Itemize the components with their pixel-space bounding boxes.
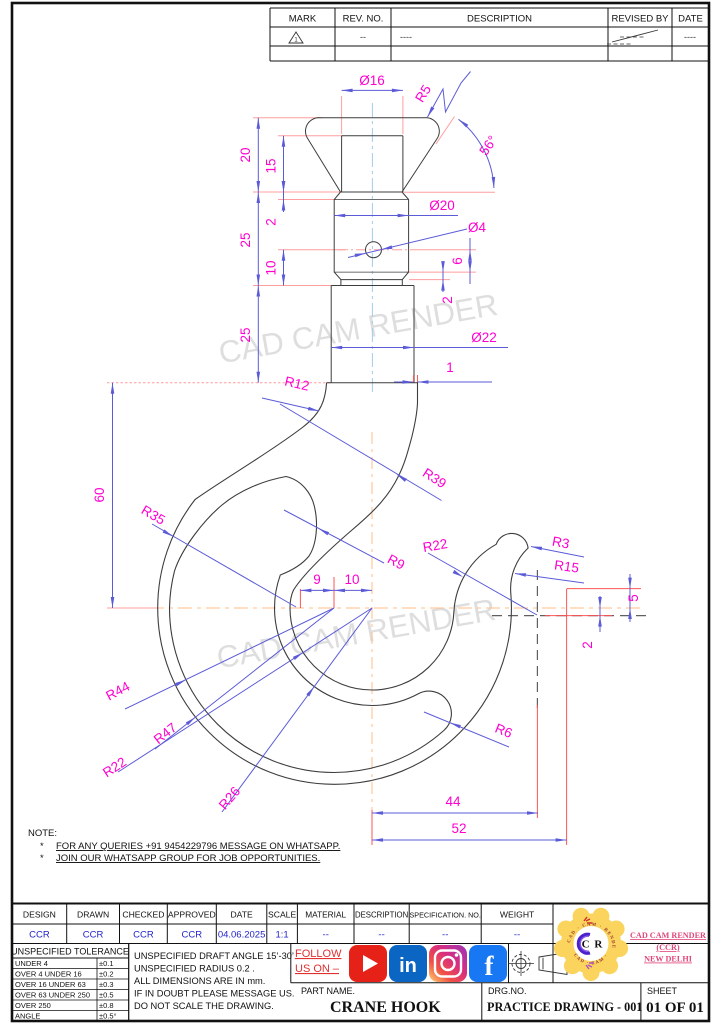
- svg-text:44: 44: [445, 794, 461, 809]
- svg-text:60: 60: [92, 487, 107, 502]
- svg-text:*: *: [40, 841, 44, 852]
- svg-text:15: 15: [264, 158, 279, 173]
- svg-text:2: 2: [580, 641, 595, 649]
- svg-text:R15: R15: [553, 557, 580, 575]
- svg-text:OVER 4 UNDER 16: OVER 4 UNDER 16: [15, 970, 82, 979]
- svg-text:±0.5°: ±0.5°: [99, 1012, 117, 1021]
- svg-text:CRANE HOOK: CRANE HOOK: [330, 999, 441, 1016]
- svg-text:DESCRIPTION: DESCRIPTION: [467, 14, 532, 25]
- svg-text:6: 6: [450, 257, 465, 265]
- svg-text:56°: 56°: [476, 133, 500, 158]
- svg-text:CAD CAM RENDER: CAD CAM RENDER: [630, 931, 706, 940]
- svg-text:Ø20: Ø20: [429, 198, 455, 213]
- svg-text:NOTE:: NOTE:: [28, 828, 57, 839]
- svg-text:--: --: [378, 930, 384, 941]
- svg-text:ALL DIMENSIONS ARE IN mm.: ALL DIMENSIONS ARE IN mm.: [134, 976, 265, 986]
- svg-text:--: --: [323, 930, 329, 941]
- svg-text:1:1: 1:1: [275, 930, 288, 941]
- svg-text:R47: R47: [151, 720, 180, 747]
- svg-text:±0.8: ±0.8: [99, 1001, 114, 1010]
- svg-text:20: 20: [238, 147, 253, 162]
- svg-text:CCR: CCR: [182, 930, 203, 941]
- svg-text:OVER 63 UNDER 250: OVER 63 UNDER 250: [15, 991, 90, 1000]
- svg-text:ANGLE: ANGLE: [15, 1012, 40, 1021]
- svg-text:*: *: [40, 853, 44, 864]
- svg-text:CHECKED: CHECKED: [122, 910, 164, 920]
- svg-text:CAD CAM RENDER: CAD CAM RENDER: [214, 592, 498, 676]
- svg-text:--: --: [442, 930, 448, 941]
- svg-text:±0.5: ±0.5: [99, 991, 114, 1000]
- svg-text:±0.2: ±0.2: [99, 970, 114, 979]
- svg-text:R5: R5: [412, 82, 434, 105]
- svg-text:±0.1: ±0.1: [99, 959, 114, 968]
- svg-text:1: 1: [446, 360, 454, 375]
- svg-text:SCALE: SCALE: [268, 910, 296, 920]
- svg-text:UNSPECIFIED RADIUS 0.2 .: UNSPECIFIED RADIUS 0.2 .: [134, 964, 255, 974]
- svg-text:R12: R12: [283, 374, 311, 394]
- svg-text:OVER 250: OVER 250: [15, 1001, 51, 1010]
- svg-text:52: 52: [451, 821, 466, 836]
- svg-text:9: 9: [313, 572, 321, 587]
- svg-text:04.06.2025: 04.06.2025: [218, 930, 266, 941]
- svg-text:R22: R22: [422, 536, 449, 555]
- svg-text:R39: R39: [420, 465, 449, 491]
- svg-text:(CCR): (CCR): [656, 943, 679, 952]
- svg-text:PRACTICE DRAWING - 001: PRACTICE DRAWING - 001: [487, 1000, 642, 1014]
- svg-text:25: 25: [238, 327, 253, 342]
- svg-text:DO NOT SCALE THE DRAWING.: DO NOT SCALE THE DRAWING.: [134, 1001, 274, 1011]
- svg-text:IF IN DOUBT PLEASE MESSAGE US.: IF IN DOUBT PLEASE MESSAGE US.: [134, 989, 295, 999]
- svg-text:R35: R35: [139, 502, 168, 527]
- svg-text:CCR: CCR: [133, 930, 154, 941]
- svg-text:REVISED BY: REVISED BY: [611, 14, 669, 25]
- svg-text:01 OF 01: 01 OF 01: [646, 1000, 704, 1016]
- svg-text:SPECIFICATION. NO.: SPECIFICATION. NO.: [410, 911, 481, 920]
- svg-text:MARK: MARK: [289, 14, 317, 25]
- svg-text:±0.3: ±0.3: [99, 980, 114, 989]
- svg-text:--: --: [514, 930, 520, 941]
- svg-text:2: 2: [264, 218, 279, 226]
- svg-text:REV. NO.: REV. NO.: [343, 14, 384, 25]
- svg-text:C R: C R: [582, 939, 604, 951]
- svg-text:DATE: DATE: [678, 14, 703, 25]
- svg-text:CCR: CCR: [29, 930, 50, 941]
- svg-text:UNDER 4: UNDER 4: [15, 959, 48, 968]
- svg-text:APPROVED: APPROVED: [168, 910, 216, 920]
- svg-text:5: 5: [626, 594, 641, 602]
- svg-text:--: --: [360, 32, 366, 42]
- svg-text:PART NAME.: PART NAME.: [301, 986, 355, 996]
- svg-text:JOIN OUR WHATSAPP GROUP FOR JO: JOIN OUR WHATSAPP GROUP FOR JOB OPPORTUN…: [56, 853, 320, 864]
- svg-text:OVER 16 UNDER 63: OVER 16 UNDER 63: [15, 980, 86, 989]
- svg-text:FOLLOW: FOLLOW: [295, 948, 342, 960]
- svg-text:R9: R9: [385, 551, 407, 572]
- svg-text:Ø22: Ø22: [471, 330, 497, 345]
- svg-text:25: 25: [238, 232, 253, 247]
- svg-text:----: ----: [684, 32, 696, 42]
- svg-text:DESCRIPTION: DESCRIPTION: [355, 911, 408, 920]
- svg-text:WEIGHT: WEIGHT: [500, 910, 535, 920]
- svg-text:DESIGN: DESIGN: [23, 910, 56, 920]
- svg-text:R6: R6: [493, 721, 515, 741]
- svg-text:Ø16: Ø16: [359, 73, 385, 88]
- svg-text:R22: R22: [100, 754, 129, 780]
- svg-text:CCR: CCR: [83, 930, 104, 941]
- svg-text:UNSPECIFIED TOLERANCE: UNSPECIFIED TOLERANCE: [11, 947, 129, 957]
- svg-text:UNSPECIFIED DRAFT ANGLE 15’-30: UNSPECIFIED DRAFT ANGLE 15’-30’.: [134, 951, 297, 961]
- svg-text:in: in: [399, 955, 417, 977]
- svg-text:FOR ANY QUERIES +91 9454229796: FOR ANY QUERIES +91 9454229796 MESSAGE O…: [56, 841, 340, 852]
- svg-text:CAD · CAM · RENDER: CAD · CAM · RENDER: [0, 0, 617, 949]
- svg-text:2: 2: [440, 296, 455, 304]
- svg-text:f: f: [485, 951, 495, 981]
- svg-text:Ø4: Ø4: [468, 220, 487, 235]
- svg-text:10: 10: [344, 572, 359, 587]
- svg-text:R3: R3: [551, 534, 571, 552]
- svg-text:DRG.NO.: DRG.NO.: [488, 986, 527, 996]
- svg-text:DATE: DATE: [230, 910, 253, 920]
- svg-text:SHEET: SHEET: [647, 986, 678, 996]
- svg-text:R44: R44: [103, 678, 132, 703]
- svg-text:MATERIAL: MATERIAL: [305, 910, 346, 920]
- svg-text:DRAWN: DRAWN: [77, 910, 109, 920]
- svg-text:US ON –: US ON –: [295, 963, 340, 975]
- svg-text:10: 10: [264, 260, 279, 275]
- svg-text:NEW DELHI: NEW DELHI: [644, 955, 692, 964]
- svg-text:CAD · CAM · RENDER: CAD · CAM · RENDER: [0, 0, 610, 966]
- svg-text:----: ----: [400, 32, 412, 42]
